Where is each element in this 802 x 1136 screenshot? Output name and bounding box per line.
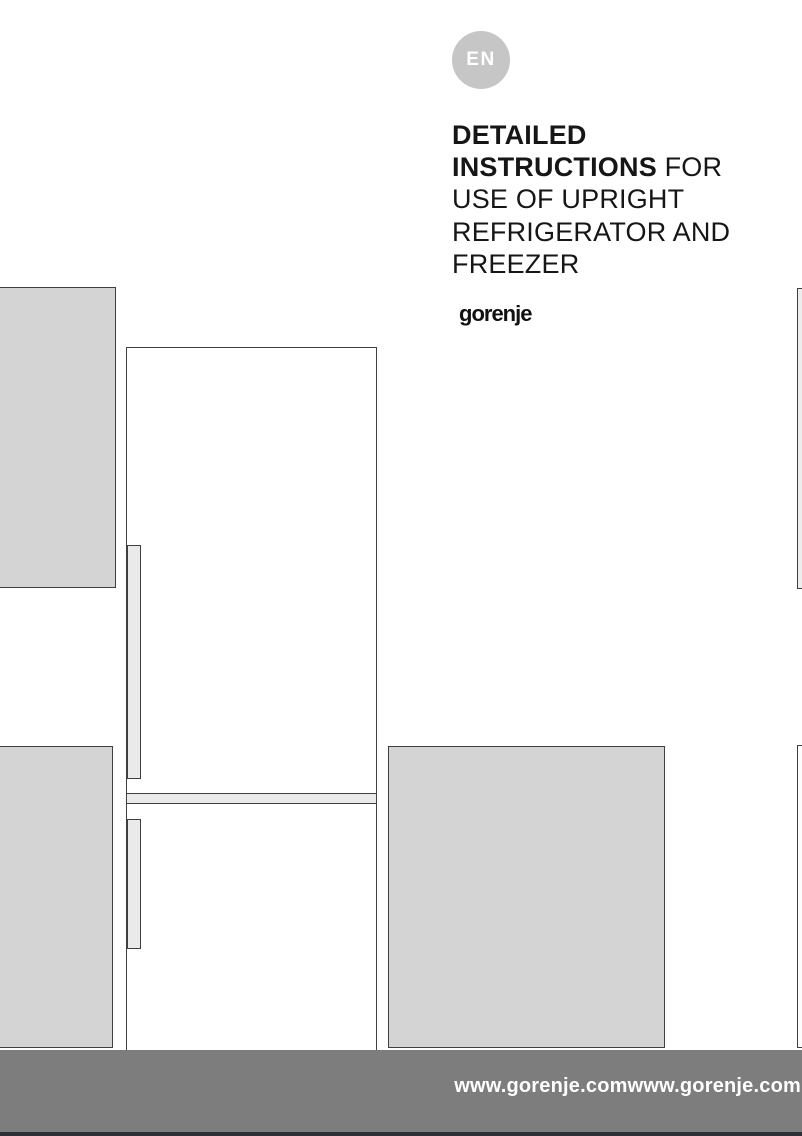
title-line-2: INSTRUCTIONS FOR	[452, 151, 782, 183]
title-line-2-regular: FOR	[657, 152, 722, 182]
footer-bar: www.gorenje.comwww.gorenje.com	[0, 1050, 802, 1136]
manual-cover-page: EN DETAILED INSTRUCTIONS FOR USE OF UPRI…	[0, 0, 802, 1136]
gorenje-logo: gorenje	[459, 301, 531, 327]
fridge-door-handle-upper	[127, 545, 141, 779]
gray-panel-mid-left	[0, 746, 113, 1048]
gray-panel-right	[388, 746, 665, 1048]
title-line-1: DETAILED	[452, 119, 782, 151]
fridge-outline	[126, 347, 377, 1050]
title-line-3: USE OF UPRIGHT	[452, 183, 782, 215]
edge-strip-bottom-right	[797, 745, 802, 1048]
page-title: DETAILED INSTRUCTIONS FOR USE OF UPRIGHT…	[452, 119, 782, 280]
title-line-4: REFRIGERATOR AND	[452, 216, 782, 248]
title-line-1-bold: DETAILED	[452, 120, 587, 150]
footer-bottom-strip	[0, 1132, 802, 1136]
title-line-5: FREEZER	[452, 248, 782, 280]
gray-panel-top-left	[0, 287, 116, 588]
footer-url: www.gorenje.comwww.gorenje.com	[454, 1075, 801, 1098]
language-badge: EN	[452, 31, 510, 89]
fridge-compartment-divider	[126, 793, 377, 804]
freezer-door-handle-lower	[127, 819, 141, 949]
edge-strip-top-right	[797, 288, 802, 589]
title-line-2-bold: INSTRUCTIONS	[452, 152, 657, 182]
